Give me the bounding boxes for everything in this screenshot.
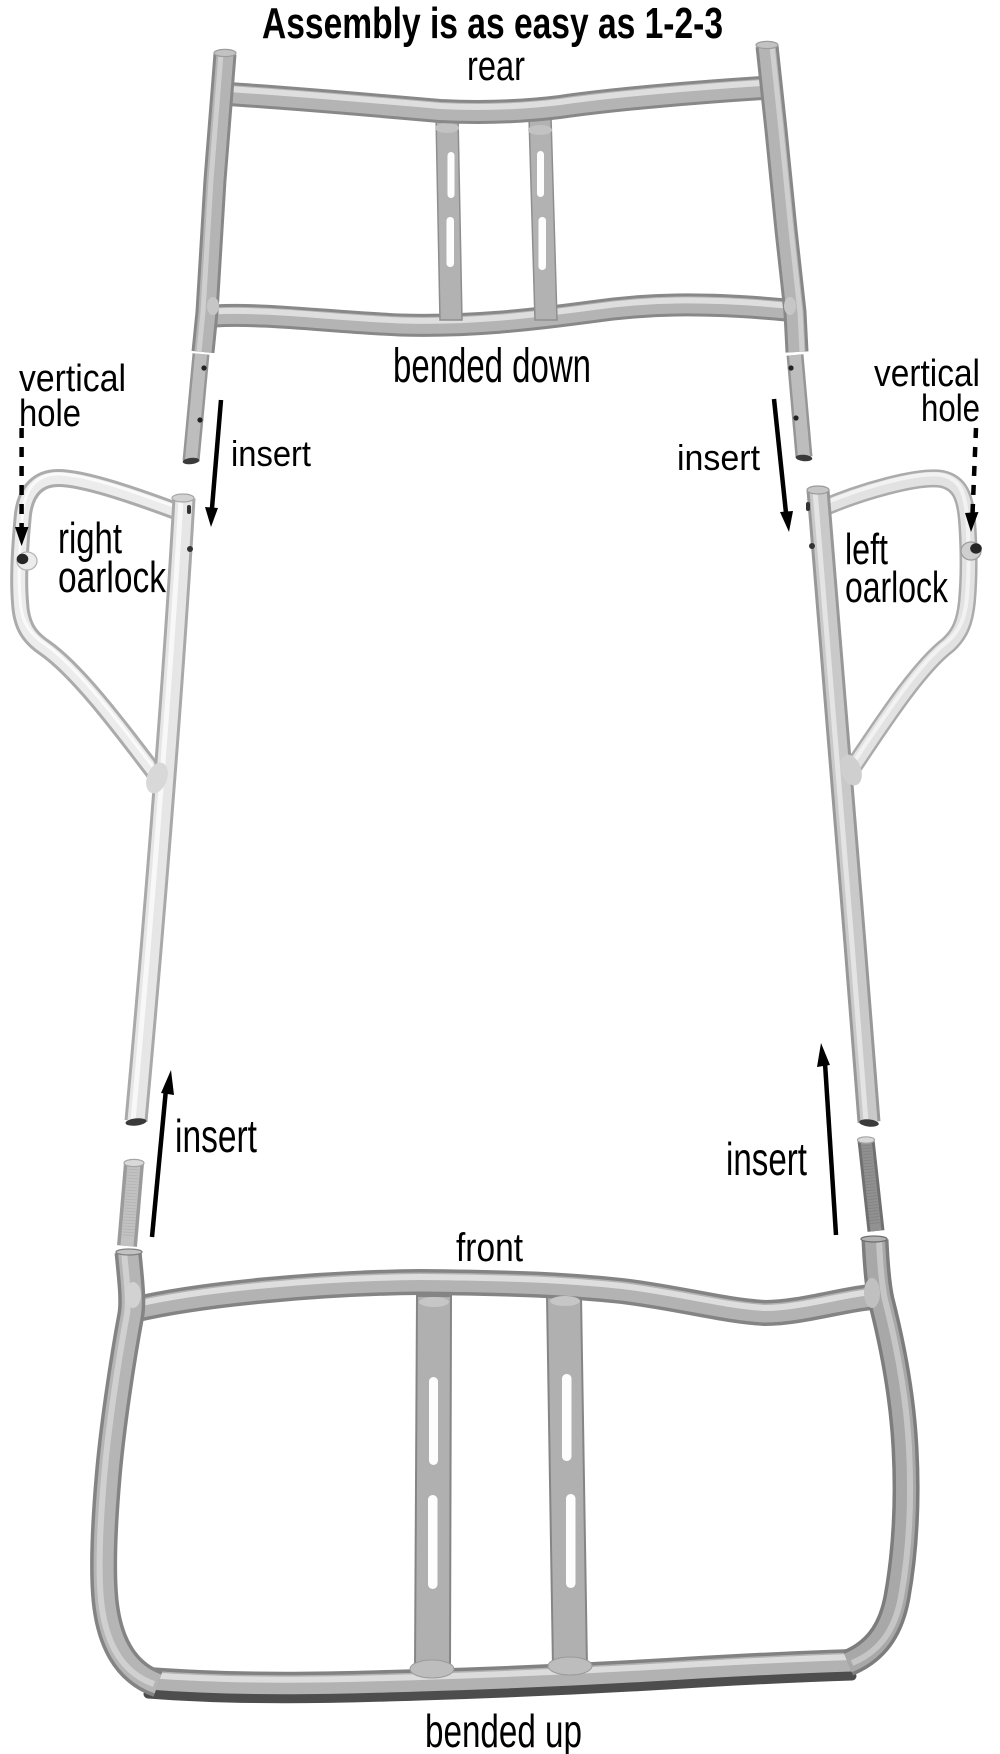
svg-text:insert: insert — [726, 1133, 807, 1185]
svg-text:front: front — [456, 1226, 523, 1270]
svg-text:insert: insert — [231, 433, 311, 474]
svg-text:bended up: bended up — [425, 1705, 582, 1754]
svg-text:oarlock: oarlock — [58, 553, 167, 602]
svg-text:rear: rear — [467, 42, 525, 89]
svg-text:hole: hole — [921, 388, 980, 430]
svg-text:insert: insert — [175, 1110, 257, 1162]
svg-text:bended down: bended down — [393, 340, 591, 393]
svg-text:Assembly is as easy as 1-2-3: Assembly is as easy as 1-2-3 — [262, 0, 723, 48]
svg-text:hole: hole — [19, 393, 81, 435]
svg-text:insert: insert — [677, 437, 760, 478]
svg-text:oarlock: oarlock — [845, 563, 949, 612]
